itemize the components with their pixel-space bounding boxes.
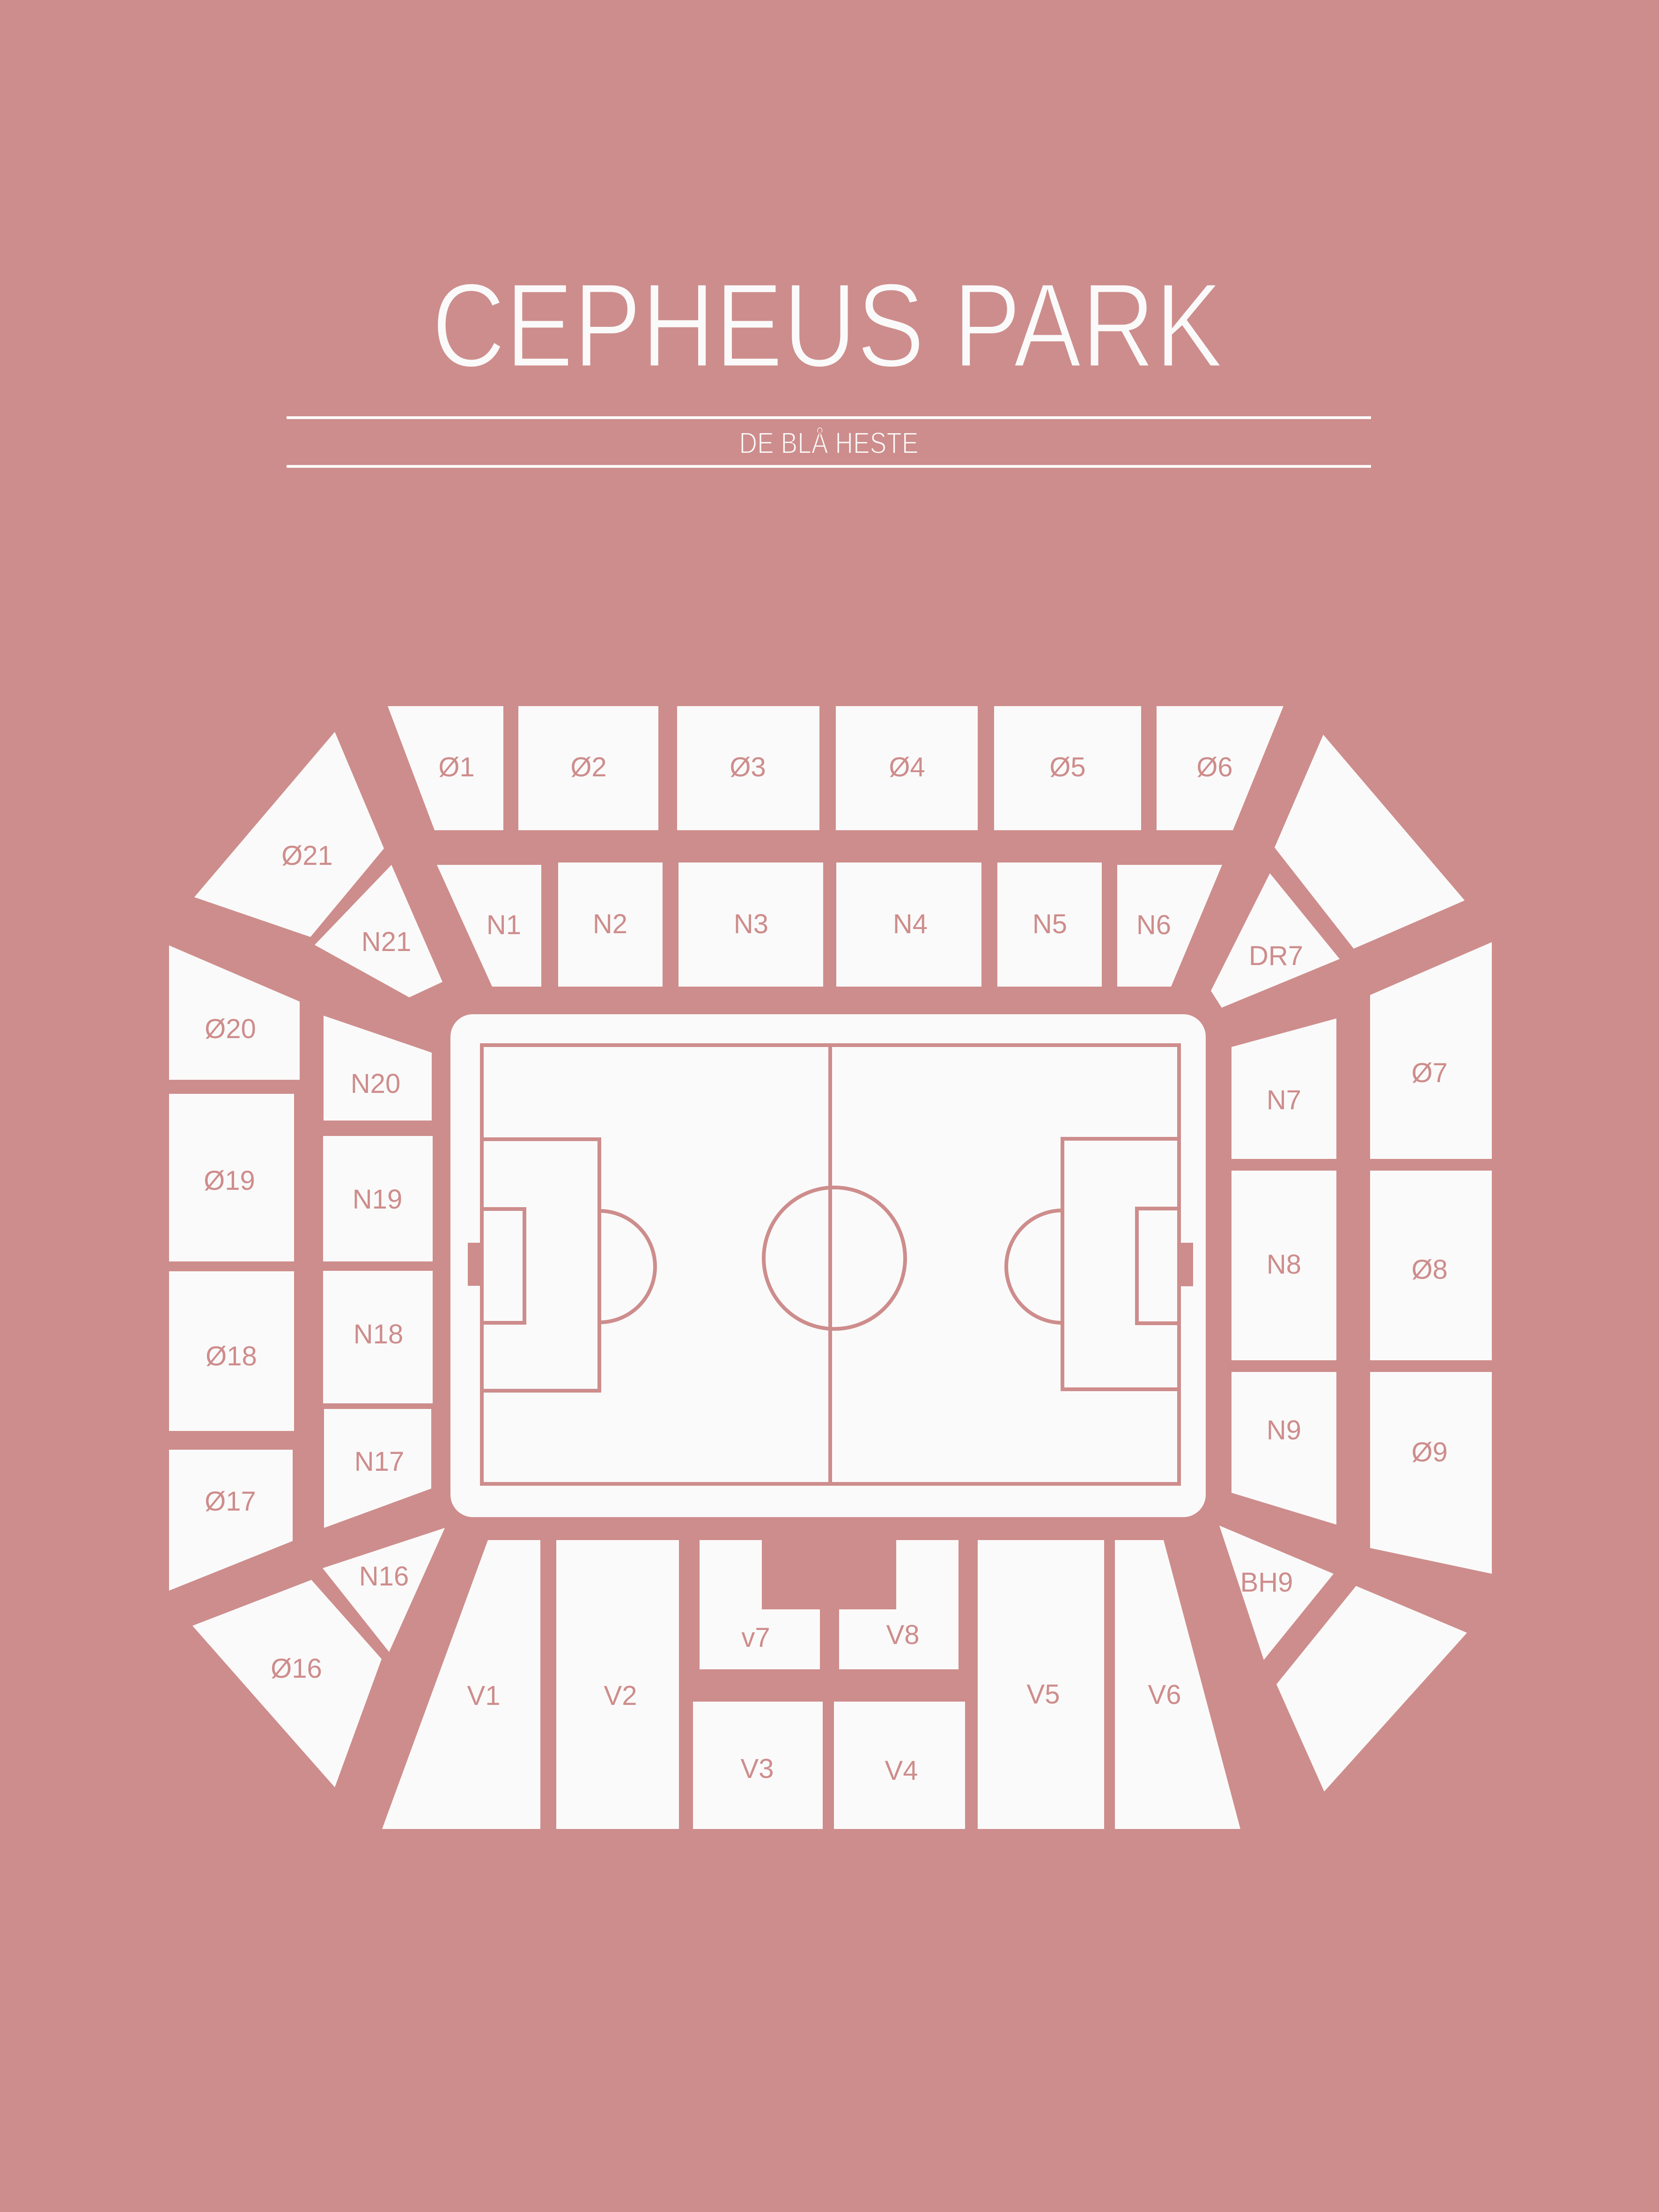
svg-text:Ø21: Ø21 <box>281 841 333 871</box>
svg-text:Ø8: Ø8 <box>1411 1254 1447 1285</box>
svg-text:Ø5: Ø5 <box>1049 752 1085 782</box>
svg-text:V8: V8 <box>886 1620 920 1650</box>
svg-text:DR7: DR7 <box>1249 941 1303 971</box>
svg-text:N9: N9 <box>1267 1415 1301 1445</box>
svg-text:Ø18: Ø18 <box>206 1341 257 1371</box>
svg-text:V2: V2 <box>604 1681 637 1711</box>
svg-text:CEPHEUS PARK: CEPHEUS PARK <box>432 258 1223 392</box>
svg-text:V5: V5 <box>1027 1679 1060 1710</box>
svg-text:v7: v7 <box>741 1622 770 1653</box>
svg-text:N18: N18 <box>354 1319 403 1349</box>
svg-text:N4: N4 <box>893 909 928 939</box>
svg-text:N16: N16 <box>359 1561 409 1592</box>
svg-text:DE BLÅ HESTE: DE BLÅ HESTE <box>739 426 919 460</box>
svg-text:Ø7: Ø7 <box>1411 1058 1447 1088</box>
svg-text:BH9: BH9 <box>1240 1567 1293 1598</box>
svg-text:N8: N8 <box>1267 1249 1301 1280</box>
svg-text:N1: N1 <box>487 910 521 940</box>
svg-text:N7: N7 <box>1267 1085 1301 1115</box>
svg-text:Ø9: Ø9 <box>1411 1437 1447 1467</box>
svg-text:Ø4: Ø4 <box>889 752 925 782</box>
svg-text:N17: N17 <box>354 1446 404 1477</box>
svg-text:Ø17: Ø17 <box>205 1486 256 1517</box>
svg-text:N6: N6 <box>1136 910 1171 940</box>
svg-text:V4: V4 <box>885 1755 918 1786</box>
svg-text:Ø19: Ø19 <box>204 1165 255 1196</box>
svg-text:V6: V6 <box>1148 1680 1181 1710</box>
svg-text:Ø16: Ø16 <box>271 1653 322 1684</box>
svg-text:Ø6: Ø6 <box>1196 752 1232 782</box>
svg-text:Ø1: Ø1 <box>438 752 474 782</box>
svg-text:V1: V1 <box>467 1681 501 1711</box>
svg-text:N3: N3 <box>734 909 768 939</box>
svg-text:N2: N2 <box>593 909 627 939</box>
svg-text:Ø20: Ø20 <box>205 1014 256 1044</box>
svg-text:N19: N19 <box>353 1184 402 1215</box>
svg-text:Ø2: Ø2 <box>570 752 606 782</box>
svg-text:N21: N21 <box>361 927 411 957</box>
svg-text:V3: V3 <box>741 1754 774 1784</box>
svg-text:N20: N20 <box>351 1069 400 1099</box>
svg-text:N5: N5 <box>1032 909 1067 939</box>
svg-text:Ø3: Ø3 <box>730 752 766 782</box>
